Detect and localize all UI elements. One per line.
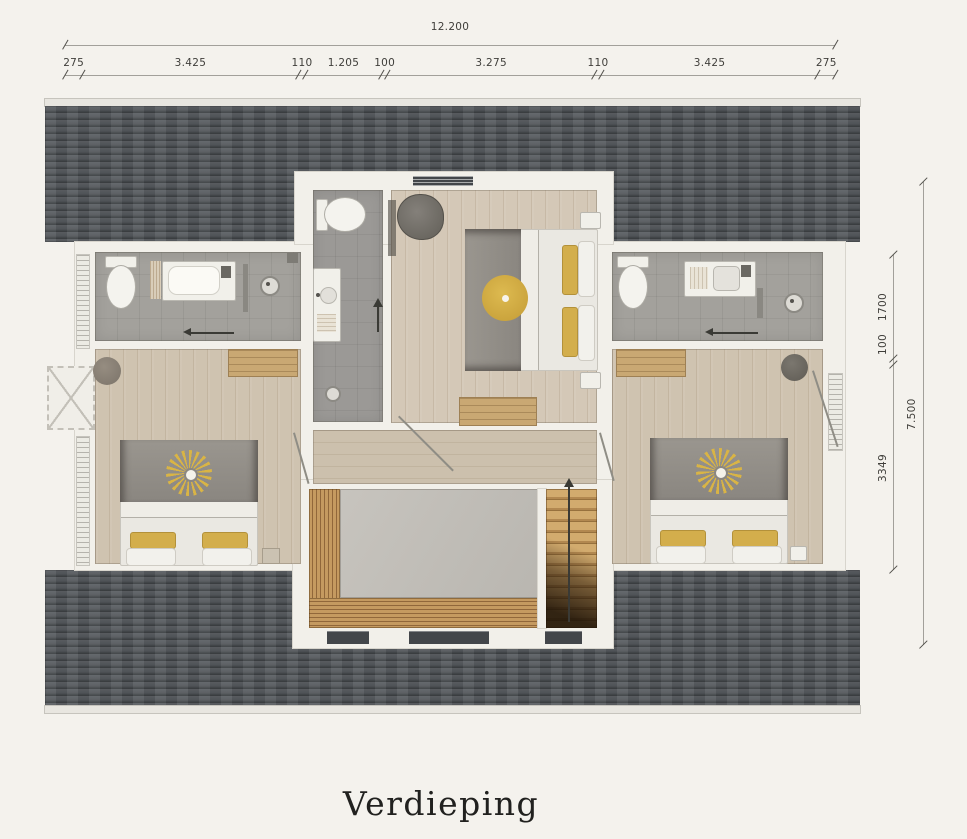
shower-shelf-left	[287, 253, 298, 263]
door-arrow-bath-right-head-icon	[705, 328, 713, 336]
bed-left-pillow-yellow-2	[202, 532, 248, 549]
bed-right-pillow-yellow-2	[732, 530, 778, 547]
faucet-center-icon	[316, 293, 320, 297]
shower-partition-left	[243, 264, 248, 312]
nightstand-right-bedroom	[790, 546, 807, 561]
roof-gutter-top	[45, 99, 860, 106]
void-balustrade-bottom	[309, 598, 538, 628]
bed-right-sunburst-icon	[696, 448, 742, 494]
bed-master-round-cushion	[482, 275, 528, 321]
bed-master-pillow-yellow-2	[562, 307, 578, 357]
door-arrow-bath-left-head-icon	[183, 328, 191, 336]
bathtub-left-basin	[168, 266, 220, 295]
pouf-left-bedroom	[93, 357, 121, 385]
page-title: Verdieping	[320, 784, 562, 823]
door-arrow-bath-center-head-icon	[373, 298, 383, 307]
dormer-bottom-window-2	[409, 631, 489, 644]
vanity-center	[313, 268, 341, 342]
stair-wall	[538, 489, 546, 628]
toilet-center	[324, 197, 366, 232]
void-opening	[340, 489, 538, 598]
roof-window-marker	[47, 366, 95, 430]
window-left-lower	[76, 436, 90, 566]
floor-plan-page: 12.2002753.4251101.2051003.2751103.42527…	[0, 0, 967, 839]
towels-right	[690, 267, 708, 289]
bed-left-pillow-white-1	[126, 548, 176, 566]
bed-right-pillow-white-1	[656, 546, 706, 564]
bath-mat-left	[150, 261, 161, 299]
staircase	[546, 489, 597, 628]
vanity-right-box-icon	[741, 265, 751, 277]
bench-master-bedroom	[459, 397, 537, 426]
shower-drain-left-icon	[266, 282, 270, 286]
bed-left-pillow-white-2	[202, 548, 252, 566]
nightstand-master-1	[580, 212, 601, 229]
door-arrow-bath-right	[712, 332, 758, 334]
roof-gutter-bottom	[45, 706, 860, 713]
window-left-upper	[76, 254, 90, 349]
shower-drain-right-icon	[790, 299, 794, 303]
chair-master	[397, 194, 444, 240]
sink-center-icon	[320, 287, 337, 304]
dormer-bottom-window-1	[327, 631, 369, 644]
bed-right-pillow-yellow-1	[660, 530, 706, 547]
bed-left-pillow-yellow-1	[130, 532, 176, 549]
stairs-up-arrow	[568, 486, 570, 622]
bed-right	[650, 438, 788, 564]
shower-drain-center-icon	[325, 386, 341, 402]
toilet-left	[106, 265, 136, 309]
nightstand-left-bedroom	[262, 548, 280, 564]
bench-right-bedroom	[616, 349, 686, 377]
bed-right-pillow-white-2	[732, 546, 782, 564]
bed-left	[120, 440, 258, 566]
shower-head-left-icon	[260, 276, 280, 296]
hallway-floor	[313, 430, 597, 484]
shower-partition-right	[757, 288, 763, 318]
door-arrow-bath-left	[190, 332, 234, 334]
bench-left-bedroom	[228, 349, 298, 377]
vanity-right	[684, 261, 756, 297]
door-arrow-bath-center	[377, 306, 379, 332]
bed-master-pillow-white-1	[578, 241, 595, 297]
wardrobe-master	[388, 200, 396, 256]
sink-right-icon	[713, 266, 740, 291]
dormer-top-window	[413, 176, 473, 186]
bed-master-pillow-yellow-1	[562, 245, 578, 295]
staircase-lower-shade	[546, 489, 597, 628]
bed-master-pillow-white-2	[578, 305, 595, 361]
bed-left-sunburst-icon	[166, 450, 212, 496]
bed-master	[465, 229, 598, 371]
bed-right-fold	[651, 500, 787, 516]
pouf-right-bedroom	[781, 354, 808, 381]
dormer-bottom-window-3	[545, 631, 582, 644]
stairs-up-arrowhead-icon	[564, 478, 574, 487]
bathtub-left	[162, 261, 236, 301]
bathtub-left-faucet-icon	[221, 266, 231, 278]
towels-center	[317, 314, 336, 332]
shower-head-right-icon	[784, 293, 804, 313]
nightstand-master-2	[580, 372, 601, 389]
toilet-right	[618, 265, 648, 309]
floor-plan	[0, 0, 967, 839]
bed-left-fold	[121, 502, 257, 518]
